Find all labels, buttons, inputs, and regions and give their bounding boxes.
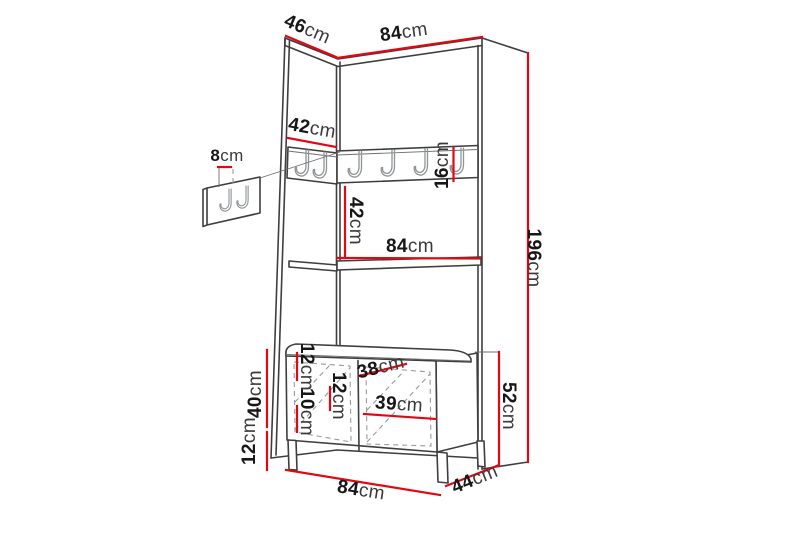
dim-label-bench-leg-height: 12cm [239,417,261,465]
dim-unit: cm [328,394,349,420]
dim-unit: cm [432,141,453,167]
dim-label-door-width-right: 39cm [374,392,423,417]
dim-value: 8 [210,146,220,165]
dim-value: 39 [374,392,397,414]
dim-unit: cm [408,236,434,257]
dim-unit: cm [296,410,317,436]
dim-value: 12 [328,372,349,394]
dim-label-door-offset-top: 12cm [295,343,317,391]
dimension-diagram: 46cm 84cm 42cm 8cm 16cm 42cm 84cm 196cm … [0,0,800,533]
dim-unit: cm [345,219,366,245]
dim-value: 16 [432,167,453,189]
dim-label-hook-rail-height: 16cm [432,141,454,189]
dim-value: 84 [386,236,408,257]
dim-unit: cm [357,480,386,505]
dim-label-rail-to-shelf: 42cm [344,197,366,245]
dim-unit: cm [396,394,424,417]
dim-value: 52 [498,382,519,404]
dim-unit: cm [220,146,243,165]
dim-value: 40 [245,396,266,418]
dim-value: 42 [345,197,366,219]
dim-label-door-offset-middle: 12cm [327,372,349,420]
dim-value: 196 [523,228,544,261]
dim-label-bench-body-height: 40cm [245,370,267,418]
dim-label-bench-total-height: 52cm [497,382,519,430]
dim-label-shelf-width: 84cm [386,236,434,258]
dim-value: 12 [239,443,260,465]
dim-value: 12 [296,343,317,365]
dim-label-door-offset-bottom: 10cm [295,388,317,436]
dim-label-total-height: 196cm [522,228,544,287]
diagram-canvas [0,0,800,533]
dim-unit: cm [308,118,337,143]
dim-unit: cm [400,19,429,43]
dim-unit: cm [245,370,266,396]
dim-label-wall-hook-panel: 8cm [210,146,243,166]
dim-value: 10 [296,388,317,410]
dim-unit: cm [239,417,260,443]
dim-value: 84 [379,22,404,46]
dim-unit: cm [523,261,544,287]
dim-unit: cm [498,404,519,430]
